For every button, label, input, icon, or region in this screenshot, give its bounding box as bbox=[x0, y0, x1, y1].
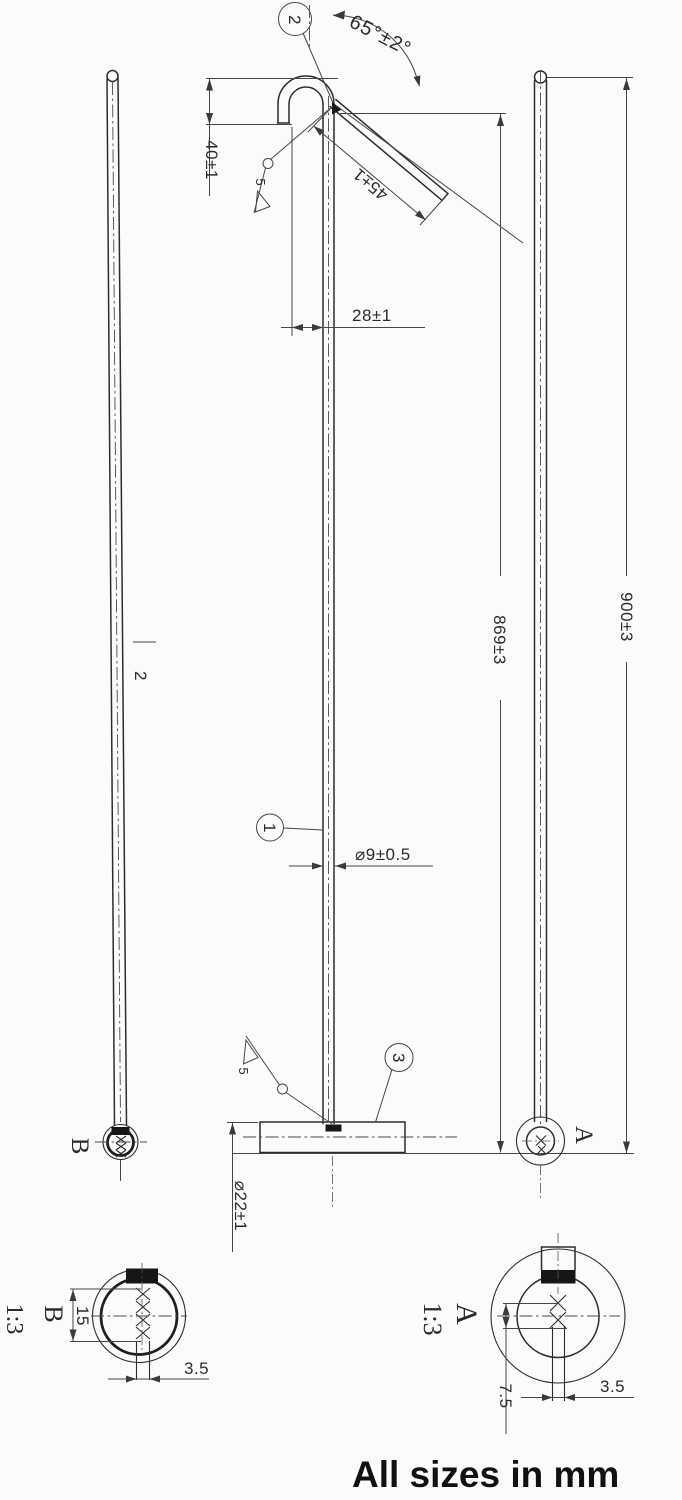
hook-offset-arrow-left bbox=[292, 324, 303, 331]
arm-length-ext-end bbox=[420, 195, 447, 225]
detail-b-slot-arrow-right bbox=[150, 1376, 161, 1383]
callout-1-leader bbox=[284, 828, 324, 830]
callout-2-label: 2 bbox=[285, 15, 304, 25]
angle-arrow-top bbox=[333, 11, 345, 20]
detail-a-off-arrow-top bbox=[503, 1304, 510, 1315]
main-view: 65°±2° 45±1 40±1 5 28±1 2 1 bbox=[202, 3, 634, 1253]
detail-a-slot-label: 3.5 bbox=[600, 1377, 625, 1396]
detail-b-slot-label: 3.5 bbox=[184, 1359, 209, 1378]
detail-b-title: B bbox=[39, 1305, 68, 1322]
weld-top-size-label: 5 bbox=[253, 178, 268, 185]
len869-arrow-top bbox=[497, 115, 504, 127]
hook-height-arrow-bottom bbox=[206, 113, 213, 125]
detail-a-scale: 1:3 bbox=[418, 1302, 447, 1335]
rod-dia-arrow-left bbox=[312, 863, 323, 870]
weld-top-all-around-circle bbox=[263, 159, 273, 169]
detail-b-len-arrow-bottom bbox=[70, 1330, 77, 1342]
detail-a-off-arrow-bottom bbox=[503, 1317, 510, 1328]
hook-height-label: 40±1 bbox=[202, 140, 221, 180]
detail-a-slot-arrow-left bbox=[542, 1394, 553, 1401]
len900-arrow-bottom bbox=[623, 1142, 630, 1154]
a-end-x-marks bbox=[536, 1136, 546, 1154]
engineering-drawing-sheet: 2 B 65°±2° bbox=[0, 0, 682, 1500]
callout-1-label: 1 bbox=[260, 823, 279, 833]
rod-dia-label: ⌀9±0.5 bbox=[355, 845, 411, 864]
hook-height-arrow-top bbox=[206, 79, 213, 91]
hook-offset-arrow-right bbox=[312, 324, 323, 331]
detail-b-len-arrow-top bbox=[70, 1290, 77, 1302]
detail-a-view: 7.5 3.5 A 1:3 bbox=[418, 1233, 634, 1434]
angle-dim-label: 65°±2° bbox=[346, 11, 415, 61]
hook-offset-label: 28±1 bbox=[352, 306, 392, 325]
detail-a-off-label: 7.5 bbox=[496, 1383, 515, 1408]
detail-a-slot-arrow-right bbox=[565, 1394, 576, 1401]
section-a-label: A bbox=[570, 1126, 597, 1144]
drawing-canvas: 2 B 65°±2° bbox=[0, 0, 682, 1500]
len869-arrow-bottom bbox=[497, 1141, 504, 1153]
detail-a-x-marks bbox=[550, 1295, 566, 1328]
len900-label: 900±3 bbox=[617, 592, 636, 642]
len869-label: 869±3 bbox=[490, 615, 509, 665]
left-rod-view: 2 B bbox=[66, 71, 156, 1182]
callout-3-label: 3 bbox=[389, 1053, 408, 1063]
angle-arrow-end bbox=[414, 75, 421, 87]
arm-length-label: 45±1 bbox=[349, 164, 392, 204]
right-rod-view: A 900±3 bbox=[517, 70, 637, 1198]
hook-inner-arc bbox=[289, 87, 323, 104]
detail-b-len-label: 15 bbox=[73, 1306, 92, 1326]
detail-a-title: A bbox=[450, 1303, 483, 1325]
detail-b-slot-arrow-left bbox=[126, 1376, 137, 1383]
left-rod-tip bbox=[107, 71, 118, 82]
detail-b-scale: 1:3 bbox=[1, 1304, 27, 1335]
rod-dia-arrow-right bbox=[335, 863, 346, 870]
base-dia-label: ⌀22±1 bbox=[231, 1181, 250, 1231]
weld-bottom-leader bbox=[286, 1093, 332, 1125]
callout-3-leader bbox=[376, 1070, 393, 1123]
weld-bottom-all-around-circle bbox=[278, 1084, 288, 1094]
part-ref-label: 2 bbox=[131, 671, 150, 681]
weld-bottom-size-label: 5 bbox=[236, 1067, 251, 1074]
hook-outer-arc bbox=[278, 76, 334, 104]
base-dia-arrow bbox=[229, 1123, 236, 1135]
detail-b-view: 15 3.5 B 1:3 bbox=[1, 1263, 209, 1383]
base-weld-bead bbox=[326, 1125, 342, 1132]
arm-length-arrow-end bbox=[415, 210, 426, 220]
b-end-weld-band bbox=[112, 1127, 130, 1135]
len900-arrow-top bbox=[623, 79, 630, 91]
detail-b-knurl-hatch bbox=[136, 1288, 150, 1339]
units-note: All sizes in mm bbox=[352, 1454, 619, 1495]
weld-top-fillet-triangle bbox=[256, 191, 271, 212]
section-b-label: B bbox=[66, 1138, 93, 1155]
